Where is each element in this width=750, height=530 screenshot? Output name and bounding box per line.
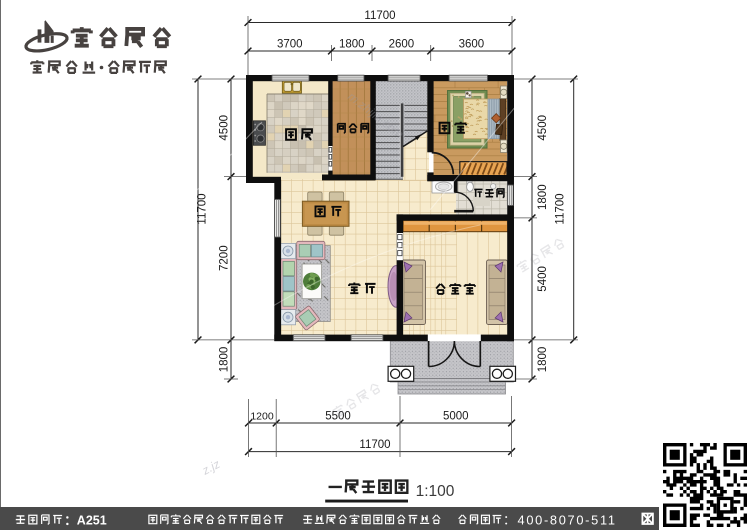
svg-text:：400-8070-511: ：400-8070-511 xyxy=(503,513,617,528)
svg-text:2600: 2600 xyxy=(389,39,415,51)
svg-text:3700: 3700 xyxy=(277,39,303,51)
svg-text:1200: 1200 xyxy=(250,411,274,423)
svg-text:5500: 5500 xyxy=(325,411,351,423)
svg-text:7200: 7200 xyxy=(219,245,231,271)
svg-text:5000: 5000 xyxy=(443,411,469,423)
svg-text:11700: 11700 xyxy=(197,193,209,224)
svg-text:11700: 11700 xyxy=(359,439,390,451)
svg-text:4500: 4500 xyxy=(219,115,231,141)
svg-text:11700: 11700 xyxy=(555,193,567,224)
svg-text:1800: 1800 xyxy=(537,184,549,210)
svg-text:1:100: 1:100 xyxy=(416,483,455,500)
svg-text:1800: 1800 xyxy=(219,347,231,373)
svg-text:1800: 1800 xyxy=(537,347,549,373)
svg-text:：A251: ：A251 xyxy=(64,514,106,528)
svg-text:4500: 4500 xyxy=(537,115,549,141)
svg-text:11700: 11700 xyxy=(364,10,395,22)
svg-text:3600: 3600 xyxy=(459,39,485,51)
svg-text:5400: 5400 xyxy=(537,266,549,292)
svg-text:1800: 1800 xyxy=(339,39,365,51)
svg-text:z.jz: z.jz xyxy=(199,457,222,478)
